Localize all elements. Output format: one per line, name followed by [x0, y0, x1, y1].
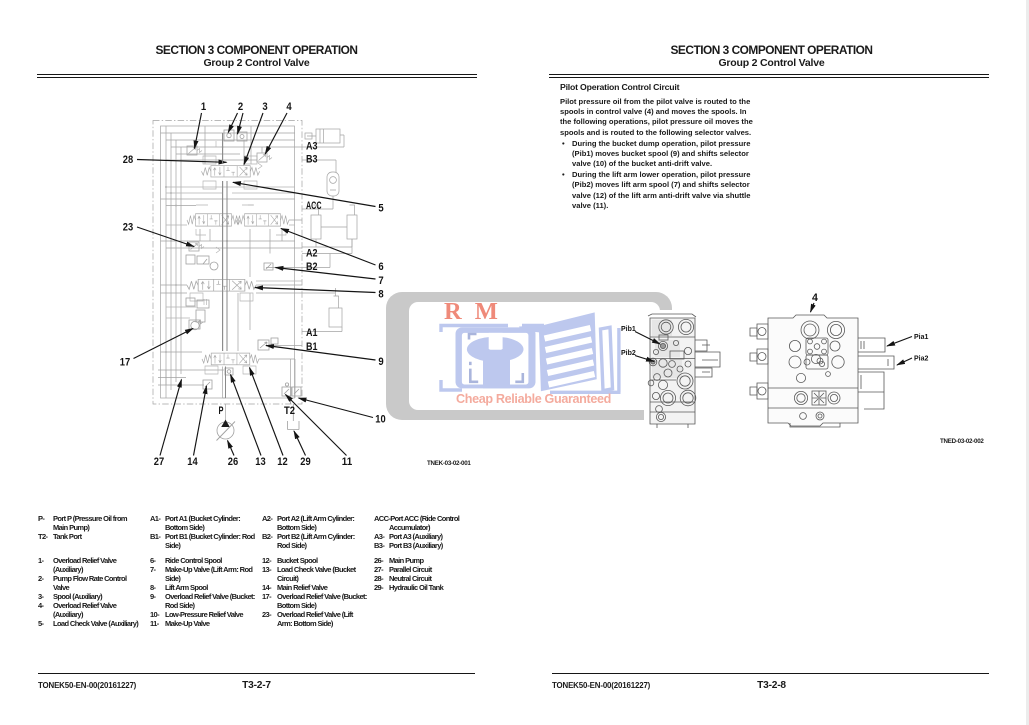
- svg-text:Pib1: Pib1: [621, 326, 636, 333]
- svg-text:4: 4: [812, 292, 818, 304]
- svg-text:Pib2: Pib2: [621, 350, 636, 357]
- svg-text:Pia1: Pia1: [914, 334, 929, 341]
- svg-text:Pia2: Pia2: [914, 356, 929, 363]
